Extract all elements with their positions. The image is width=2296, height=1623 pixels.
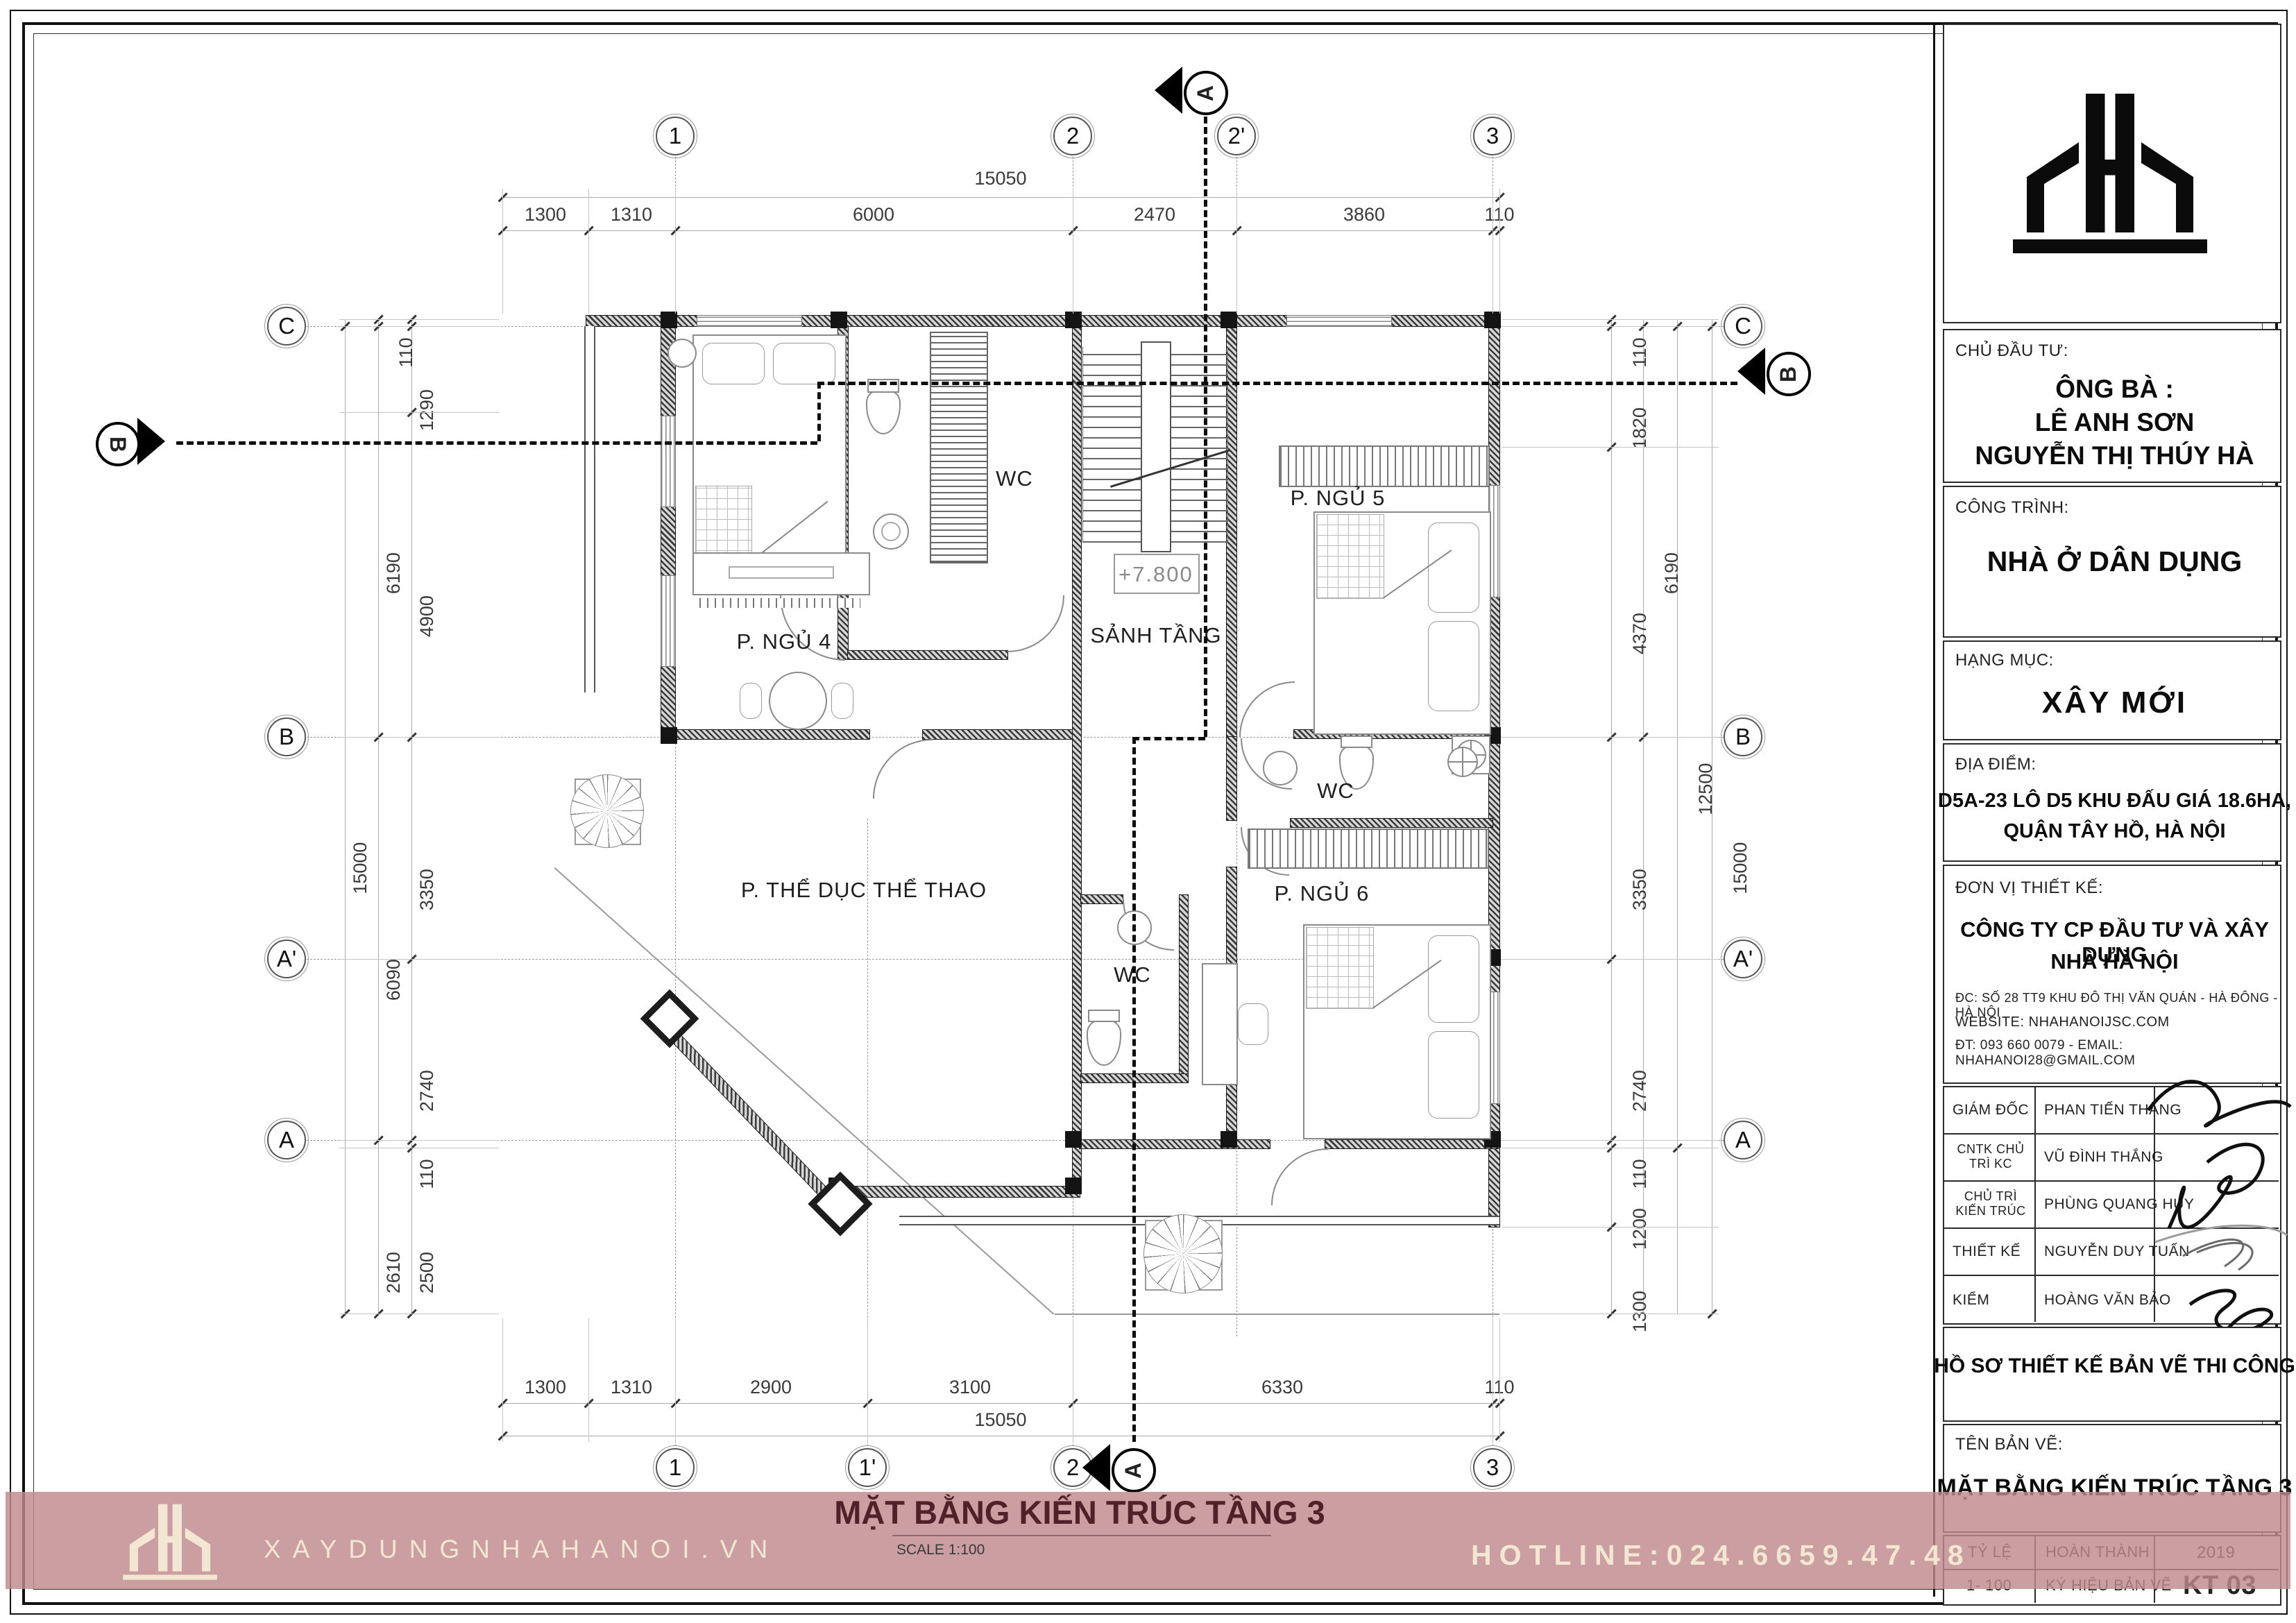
grid-bubble-right-B: B <box>1724 717 1762 756</box>
dim-label: 15000 <box>350 842 371 894</box>
dim-line <box>1712 319 1712 1314</box>
dim-label: 1300 <box>525 204 566 226</box>
dim-extension <box>588 189 589 314</box>
grid-bubble-right-C: C <box>1724 307 1762 346</box>
drawing-sheet: 15050 1300 1310 6000 2470 3860 110 1300 … <box>0 0 2296 1623</box>
toilet <box>866 389 901 434</box>
section-marker-A-bottom: A <box>1112 1448 1156 1493</box>
dim-label: 4370 <box>1629 613 1651 654</box>
dim-extension <box>1502 1148 1719 1148</box>
section-marker-B-right-arrow <box>1737 348 1765 395</box>
column <box>1221 1131 1237 1148</box>
dim-extension <box>339 737 499 738</box>
owner-line3: NGUYỄN THỊ THÚY HÀ <box>1933 441 2296 470</box>
toilet-tank <box>867 379 899 393</box>
grid-bubble-top-1: 1 <box>656 117 695 155</box>
pillow <box>773 343 835 384</box>
dim-extension <box>339 326 499 327</box>
sink <box>1263 751 1298 785</box>
sheet-name-label: TÊN BẢN VẼ: <box>1955 1435 2063 1454</box>
dim-label: 15050 <box>974 168 1026 189</box>
wardrobe <box>1248 829 1489 869</box>
dim-label: 1290 <box>416 389 438 431</box>
dim-extension <box>1502 326 1719 327</box>
dim-line <box>345 319 346 1314</box>
wall-wcb-right <box>1180 895 1188 1082</box>
signer-role: CNTK CHỦ TRÌ KC <box>1950 1142 2032 1171</box>
dim-line <box>502 197 1499 198</box>
dim-label: 1300 <box>525 1377 566 1398</box>
wall-grid2p-lower <box>1227 737 1236 820</box>
dim-label: 1310 <box>611 1377 652 1398</box>
sig-col-divider <box>2034 1086 2036 1322</box>
dim-extension <box>502 1318 503 1442</box>
dim-label: 6190 <box>383 552 405 594</box>
grid-bubble-top-2p: 2' <box>1217 117 1256 155</box>
signer-role: THIẾT KẾ <box>1953 1243 2021 1260</box>
site-boundary-bottom <box>1055 1314 1499 1315</box>
pillow <box>1428 1031 1479 1119</box>
dim-extension <box>675 1318 676 1442</box>
site-boundary-diagonal <box>554 867 1054 1314</box>
dim-label: 15000 <box>1730 842 1751 894</box>
section-marker-B-left: B <box>96 422 140 466</box>
dim-extension <box>675 189 676 314</box>
section-marker-A-top: A <box>1184 71 1228 115</box>
table-round <box>769 672 827 730</box>
dim-label: 3860 <box>1343 204 1385 226</box>
door-arc <box>1007 595 1064 652</box>
wardrobe <box>1279 445 1490 487</box>
pillow <box>1428 935 1479 1023</box>
grid-bubble-left-Ap: A' <box>267 940 306 978</box>
stair-flight-right <box>1168 347 1228 543</box>
category-label: HẠNG MỤC: <box>1955 651 2054 670</box>
location-label: ĐỊA ĐIỂM: <box>1955 755 2036 774</box>
wall-stair-right <box>1227 326 1236 737</box>
designer-label: ĐƠN VỊ THIẾT KẾ: <box>1955 878 2103 898</box>
grid-bubble-bot-3: 3 <box>1473 1448 1512 1487</box>
room-label-gym: P. THỂ DỤC THỂ THAO <box>741 878 987 903</box>
dim-extension <box>588 1318 589 1442</box>
column <box>1065 312 1082 328</box>
level-mark: +7.800 <box>1119 562 1193 587</box>
dim-label: 2900 <box>750 1377 792 1398</box>
tree-symbol <box>570 774 644 848</box>
owner-line1: ÔNG BÀ : <box>1933 375 2296 404</box>
column <box>661 312 677 328</box>
location-line2: QUẬN TÂY HỒ, HÀ NỘI <box>1933 820 2296 843</box>
door-arc <box>873 739 933 799</box>
blanket <box>695 486 752 562</box>
dim-extension <box>339 412 499 413</box>
room-label-bed5: P. NGỦ 5 <box>1291 486 1386 511</box>
dresser-top <box>729 566 834 579</box>
project-label: CÔNG TRÌNH: <box>1955 498 2069 518</box>
dim-label: 4900 <box>416 595 438 637</box>
toilet <box>1087 1019 1121 1066</box>
company-logo-icon <box>2002 76 2218 264</box>
fan-symbol <box>1447 747 1478 777</box>
dim-extension <box>1502 959 1719 960</box>
column <box>831 312 847 328</box>
company-contact: ĐT: 093 660 0079 - EMAIL: NHAHANOI28@GMA… <box>1955 1038 2296 1069</box>
dim-label: 110 <box>416 1159 438 1189</box>
company-website: WEBSITE: NHAHANOIJSC.COM <box>1955 1014 2170 1030</box>
footer-logo-icon <box>97 1497 243 1585</box>
title-block: CHỦ ĐẦU TƯ: ÔNG BÀ : LÊ ANH SƠN NGUYỄN T… <box>1933 0 2296 1623</box>
dim-line <box>378 319 379 1314</box>
column <box>1221 312 1237 328</box>
dim-label: 110 <box>1629 338 1651 368</box>
wall-wcmid-bottom <box>1291 819 1493 827</box>
dim-extension <box>1502 1314 1719 1314</box>
column <box>1065 1131 1082 1148</box>
section-line-B-jog <box>817 382 821 441</box>
dim-extension <box>1502 319 1719 320</box>
plan-title: MẶT BẰNG KIẾN TRÚC TẦNG 3 <box>834 1493 1325 1531</box>
footer-website: XAYDUNGNHAHANOI.VN <box>264 1535 779 1564</box>
dim-extension <box>1073 189 1073 314</box>
window <box>661 576 675 666</box>
dim-label: 6000 <box>853 204 894 226</box>
section-line-A <box>1132 737 1136 1442</box>
dim-label: 2740 <box>416 1070 438 1112</box>
section-marker-A-top-arrow <box>1155 67 1182 114</box>
stair-stringer <box>1141 341 1171 552</box>
dim-line <box>502 1403 1499 1404</box>
dim-label: 3350 <box>1629 869 1651 910</box>
grid-line-2p <box>1236 157 1237 1336</box>
wall-wc-top-bottom <box>848 651 1007 659</box>
dim-line <box>411 319 412 1314</box>
dossier-title: HỒ SƠ THIẾT KẾ BẢN VẼ THI CÔNG <box>1933 1354 2296 1378</box>
owner-line2: LÊ ANH SƠN <box>1933 408 2296 437</box>
dim-extension <box>1502 737 1719 738</box>
room-label-bed4: P. NGỦ 4 <box>737 629 832 654</box>
dim-extension <box>339 1148 499 1148</box>
floor-plan: 15050 1300 1310 6000 2470 3860 110 1300 … <box>0 0 1933 1623</box>
dim-line <box>502 1436 1499 1436</box>
dim-extension <box>1499 189 1500 314</box>
blanket <box>1306 927 1374 1009</box>
toilet-tank <box>1341 736 1372 748</box>
dim-extension <box>339 1140 499 1141</box>
dim-extension <box>1236 189 1237 314</box>
column <box>661 727 677 744</box>
dim-label: 12500 <box>1695 763 1717 815</box>
footer-hotline: HOTLINE:024.6659.47.48 <box>1471 1539 1971 1572</box>
window <box>697 316 801 326</box>
room-label-wc-mid: WC <box>1317 779 1354 804</box>
door-arc <box>1271 1148 1328 1205</box>
grid-bubble-right-Ap: A' <box>1724 940 1762 978</box>
wall-wcb-top <box>1081 895 1123 903</box>
wall-grid-B-left <box>661 730 869 739</box>
dim-label: 6330 <box>1261 1377 1303 1398</box>
section-marker-A-bottom-arrow <box>1082 1444 1110 1491</box>
vent-shaft <box>930 332 988 563</box>
dim-label: 1820 <box>1629 407 1651 449</box>
room-label-wc-top: WC <box>996 466 1033 491</box>
room-label-hall: SẢNH TẦNG <box>1090 623 1221 648</box>
section-line-B <box>817 382 1737 385</box>
dim-label: 1310 <box>611 204 652 226</box>
dim-extension <box>1502 1140 1719 1141</box>
grid-bubble-left-C: C <box>267 307 306 346</box>
tree-symbol <box>1143 1214 1223 1293</box>
dim-extension <box>339 319 499 320</box>
owner-label: CHỦ ĐẦU TƯ: <box>1955 341 2068 361</box>
dim-extension <box>339 959 499 960</box>
dim-extension <box>1073 1318 1073 1442</box>
door-arc <box>1239 681 1295 737</box>
toilet-tank <box>1088 1010 1120 1022</box>
room-label-bed6: P. NGỦ 6 <box>1275 881 1370 906</box>
grid-bubble-bot-1: 1 <box>656 1448 695 1487</box>
signature-scribbles <box>2141 1069 2294 1346</box>
dim-extension <box>1493 189 1493 314</box>
dim-label: 2470 <box>1134 204 1175 226</box>
section-line-B <box>176 441 817 445</box>
section-marker-B-right: B <box>1767 352 1811 396</box>
column <box>1065 1178 1082 1194</box>
wall-left-upper <box>661 316 675 739</box>
dim-label: 6190 <box>1661 552 1683 594</box>
dim-label: 3350 <box>416 869 438 910</box>
washer-inner <box>881 522 901 541</box>
section-line-A-jog <box>1132 737 1205 740</box>
dim-label: 15050 <box>974 1409 1026 1431</box>
dim-line <box>502 230 1499 231</box>
dim-label: 110 <box>1629 1159 1651 1189</box>
grid-bubble-left-B: B <box>267 717 306 756</box>
dim-extension <box>502 189 503 314</box>
window <box>1287 316 1391 326</box>
signer-role: CHỦ TRÌ KIẾN TRÚC <box>1950 1189 2032 1218</box>
dim-line <box>1611 319 1612 1314</box>
stair-flight-left <box>1082 347 1142 543</box>
dresser-ticks <box>699 598 860 608</box>
wall-gym-diagonal <box>657 1019 842 1212</box>
dim-extension <box>1502 1227 1719 1227</box>
chair <box>831 683 853 719</box>
company-line2: NHÀ HÀ NỘI <box>1933 949 2296 974</box>
category-value: XÂY MỚI <box>1933 686 2296 720</box>
pillow <box>1428 522 1479 613</box>
pillow <box>1428 621 1479 711</box>
plan-title-underline <box>892 1535 1271 1536</box>
dim-label: 1300 <box>1629 1291 1651 1332</box>
column <box>1484 312 1501 328</box>
signer-role: KIỂM <box>1953 1292 1989 1309</box>
dim-label: 6090 <box>383 959 405 1001</box>
chair <box>740 683 762 719</box>
plan-scale-note: SCALE 1:100 <box>896 1542 985 1558</box>
wall-grid-A <box>1080 1140 1270 1148</box>
wall-gym-bottom <box>836 1187 1080 1197</box>
grid-bubble-top-3: 3 <box>1473 117 1512 155</box>
project-value: NHÀ Ở DÂN DỤNG <box>1933 545 2296 578</box>
grid-bubble-bot-1p: 1' <box>848 1448 887 1487</box>
desk <box>1202 963 1238 1085</box>
section-line-A <box>1204 117 1207 737</box>
dim-label: 2500 <box>416 1252 438 1293</box>
dim-line <box>1677 319 1678 1314</box>
section-marker-B-left-arrow <box>137 418 165 465</box>
grid-bubble-top-2: 2 <box>1053 117 1092 155</box>
chair <box>1238 1003 1268 1045</box>
dim-label: 2740 <box>1629 1070 1651 1112</box>
blanket <box>1316 514 1384 599</box>
wall-grid-A <box>1325 1140 1499 1148</box>
wall-grid-B-mid <box>923 730 1081 739</box>
pillow <box>702 343 765 384</box>
lamp <box>667 339 697 368</box>
dim-extension <box>867 1318 868 1442</box>
column-diamond <box>640 989 699 1048</box>
grid-bubble-left-A: A <box>267 1121 306 1159</box>
dim-extension <box>339 1314 499 1314</box>
dim-extension <box>1493 1318 1493 1442</box>
dim-label: 3100 <box>949 1377 991 1398</box>
wall-stair-left <box>1073 326 1081 1188</box>
dim-label: 1200 <box>1629 1208 1651 1250</box>
terrace-railing <box>584 326 595 692</box>
grid-bubble-right-A: A <box>1724 1121 1762 1159</box>
window <box>661 416 675 507</box>
dim-label: 2610 <box>383 1252 405 1293</box>
dim-label: 110 <box>396 338 417 368</box>
location-line1: D5A-23 LÔ D5 KHU ĐẤU GIÁ 18.6HA, <box>1933 790 2296 813</box>
signer-role: GIÁM ĐỐC <box>1953 1102 2029 1119</box>
dim-extension <box>1499 1318 1500 1442</box>
dim-extension <box>1502 447 1719 448</box>
